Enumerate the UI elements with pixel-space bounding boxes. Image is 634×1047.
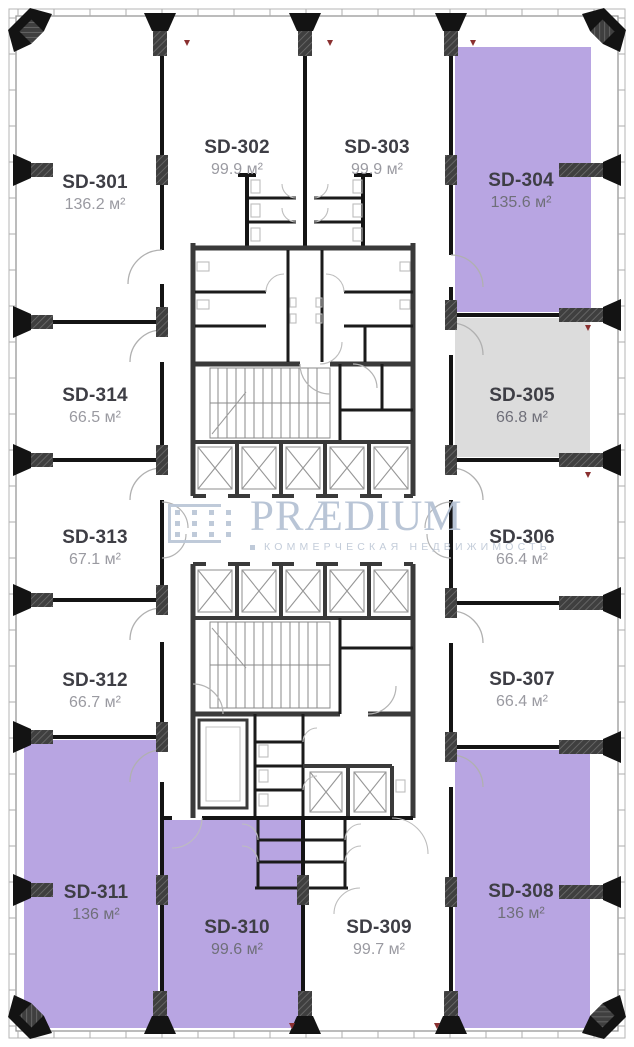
floor-plan: PRÆDIUM КОММЕРЧЕСКАЯ НЕДВИЖИМОСТЬ SD-301…: [0, 0, 634, 1047]
unit-sd-305[interactable]: [455, 318, 590, 457]
unit-sd-310[interactable]: [163, 820, 303, 1028]
unit-doors: [128, 250, 483, 787]
unit-sd-313[interactable]: [20, 462, 160, 598]
unit-sd-304[interactable]: [455, 47, 591, 312]
elevator-bank-lower: [191, 564, 415, 618]
unit-sd-307[interactable]: [453, 605, 590, 745]
unit-sd-314[interactable]: [20, 324, 160, 458]
unit-sd-312[interactable]: [20, 602, 160, 735]
lobby-doors: [162, 502, 451, 558]
unit-sd-306[interactable]: [453, 462, 590, 601]
core-upper-wc: [193, 243, 413, 496]
core-upper-stairs: [210, 364, 413, 442]
elevator-bank-upper: [191, 442, 415, 496]
